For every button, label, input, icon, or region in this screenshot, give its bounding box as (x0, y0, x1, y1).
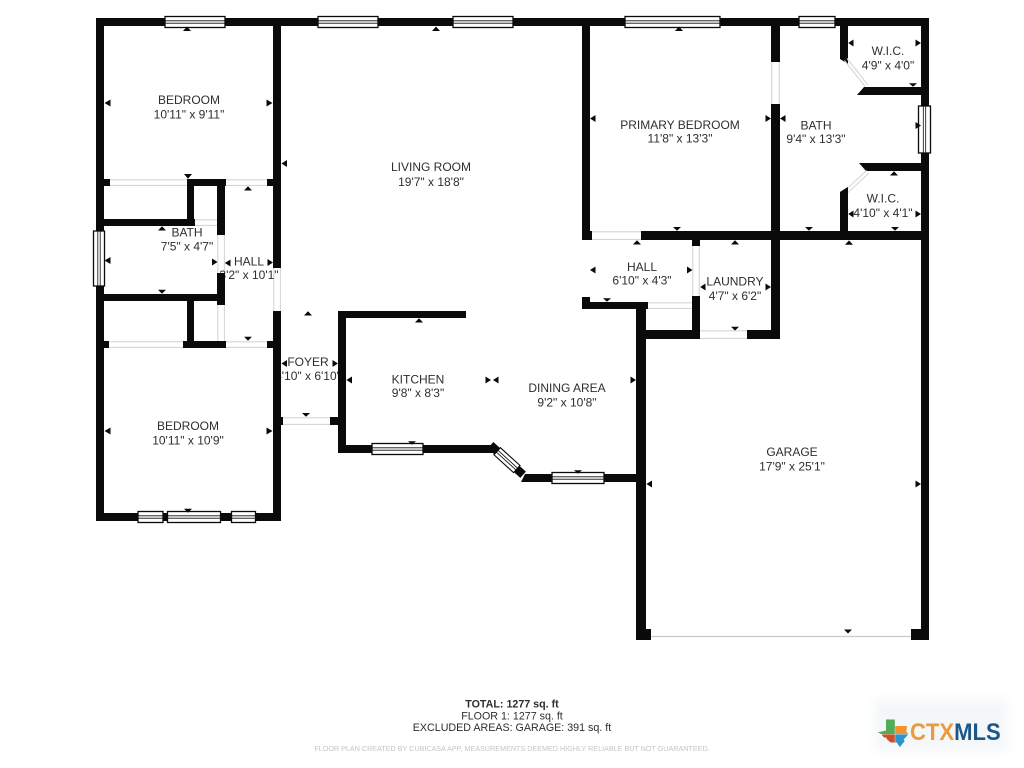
svg-text:BATH: BATH (800, 119, 831, 133)
svg-text:FOYER: FOYER (287, 355, 329, 369)
svg-text:W.I.C.: W.I.C. (872, 44, 905, 58)
svg-text:GARAGE: GARAGE (766, 445, 817, 459)
svg-text:EXCLUDED AREAS: GARAGE: 391 sq: EXCLUDED AREAS: GARAGE: 391 sq. ft (413, 722, 611, 734)
svg-text:7'5" x 4'7": 7'5" x 4'7" (161, 240, 213, 254)
svg-text:6'10" x 4'3": 6'10" x 4'3" (612, 274, 671, 288)
svg-text:HALL: HALL (234, 255, 264, 269)
svg-text:KITCHEN: KITCHEN (392, 373, 445, 387)
svg-text:4'9" x 4'0": 4'9" x 4'0" (862, 59, 914, 73)
svg-text:10'11" x 9'11": 10'11" x 9'11" (154, 108, 225, 122)
svg-text:19'7" x 18'8": 19'7" x 18'8" (398, 175, 464, 189)
svg-text:FLOOR 1: 1277 sq. ft: FLOOR 1: 1277 sq. ft (461, 711, 563, 723)
svg-text:4'10" x 4'1": 4'10" x 4'1" (853, 206, 912, 220)
svg-text:FLOOR PLAN CREATED BY CUBICASA: FLOOR PLAN CREATED BY CUBICASA APP, MEAS… (314, 744, 709, 753)
svg-text:BATH: BATH (171, 226, 202, 240)
svg-text:17'9" x 25'1": 17'9" x 25'1" (759, 460, 825, 474)
svg-text:3'10" x 6'10": 3'10" x 6'10" (275, 369, 341, 383)
svg-text:10'11" x 10'9": 10'11" x 10'9" (152, 434, 224, 448)
svg-text:LAUNDRY: LAUNDRY (706, 275, 763, 289)
svg-text:BEDROOM: BEDROOM (158, 93, 220, 107)
svg-text:9'8" x 8'3": 9'8" x 8'3" (392, 386, 444, 400)
svg-text:W.I.C.: W.I.C. (867, 192, 900, 206)
svg-text:DINING AREA: DINING AREA (528, 381, 605, 395)
svg-text:CTX: CTX (910, 718, 955, 745)
svg-text:TOTAL: 1277 sq. ft: TOTAL: 1277 sq. ft (465, 699, 559, 711)
svg-text:4'7" x 6'2": 4'7" x 6'2" (709, 289, 761, 303)
svg-text:MLS: MLS (954, 718, 1001, 745)
svg-text:LIVING ROOM: LIVING ROOM (391, 160, 471, 174)
svg-text:HALL: HALL (627, 260, 657, 274)
svg-text:11'8" x 13'3": 11'8" x 13'3" (648, 132, 713, 146)
svg-text:9'4" x 13'3": 9'4" x 13'3" (786, 132, 845, 146)
svg-text:BEDROOM: BEDROOM (157, 419, 219, 433)
svg-text:PRIMARY BEDROOM: PRIMARY BEDROOM (620, 118, 740, 132)
svg-text:3'2" x 10'1": 3'2" x 10'1" (219, 268, 278, 282)
svg-text:9'2" x 10'8": 9'2" x 10'8" (537, 396, 596, 410)
